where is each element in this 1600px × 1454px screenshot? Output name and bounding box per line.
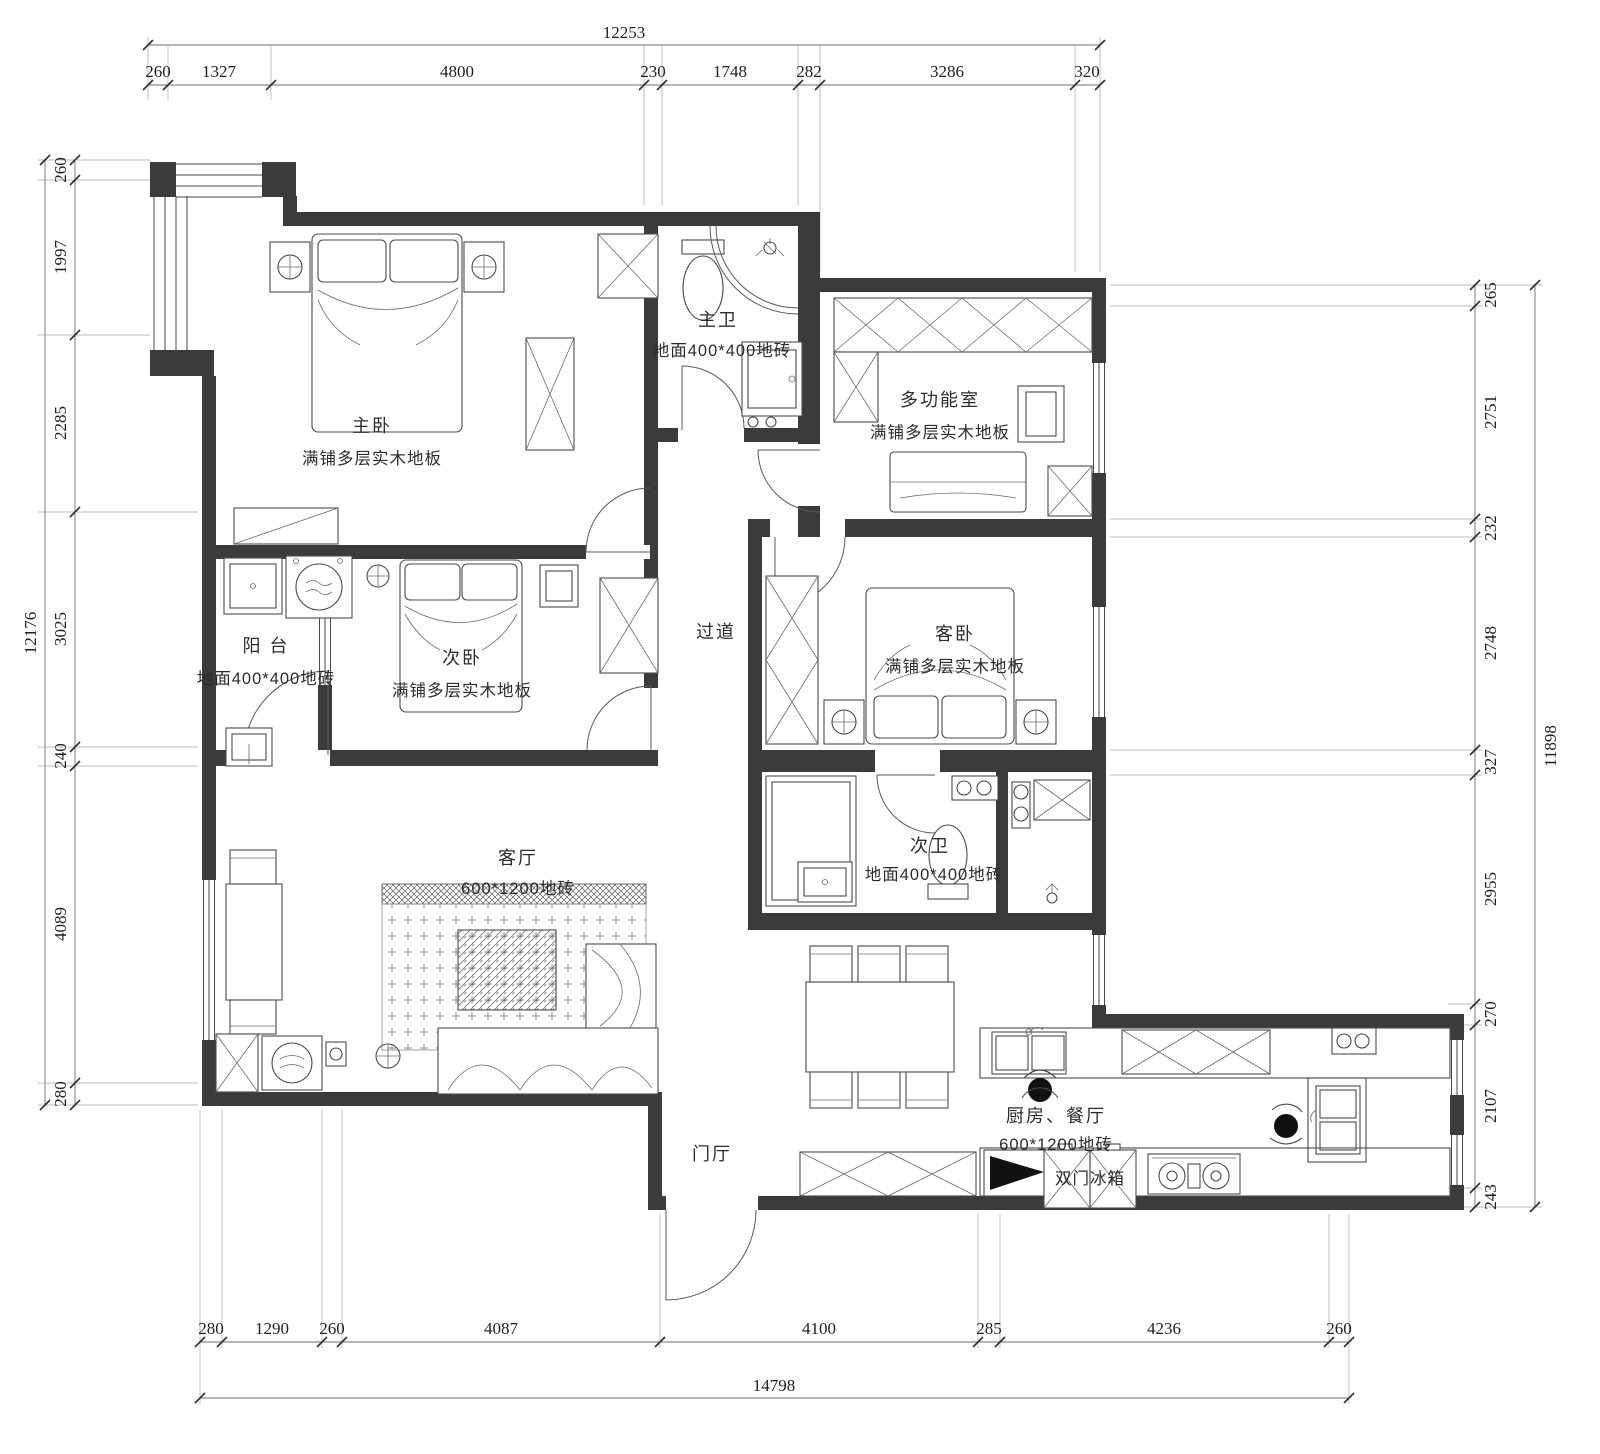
sofa-chaise (586, 944, 656, 1030)
room-label-corridor: 过道 (696, 622, 736, 642)
floor-plan-page: 12253 260 1327 4800 230 1748 282 3286 32… (0, 0, 1600, 1454)
dim-top-seg: 230 (640, 62, 666, 81)
floor-plan-canvas: 12253 260 1327 4800 230 1748 282 3286 32… (0, 0, 1600, 1454)
door-second-bedroom (587, 686, 651, 750)
side-unit (326, 1042, 346, 1066)
chair (230, 850, 276, 884)
dim-left-seg: 3025 (51, 612, 70, 646)
room-label-multi-function: 多功能室 满铺多层实木地板 (870, 390, 1010, 442)
room-floor-spec: 600*1200地砖 (999, 1135, 1113, 1154)
dim-left-seg: 4089 (51, 907, 70, 941)
dim-top-seg: 1327 (202, 62, 237, 81)
dim-top-total: 12253 (603, 23, 646, 42)
door-master-bath (682, 366, 744, 430)
room-name: 次卫 (910, 836, 950, 856)
dim-top-seg: 3286 (930, 62, 964, 81)
balcony-fixtures (224, 556, 352, 766)
person-icon (1022, 1070, 1058, 1102)
room-label-balcony: 阳 台 地面400*400地砖 (197, 636, 335, 688)
dim-left-seg: 2285 (51, 406, 70, 440)
person-icon (1270, 1104, 1302, 1144)
bay-window-top (176, 164, 262, 197)
dim-right-seg: 327 (1481, 749, 1500, 775)
kitchen-sink (992, 1032, 1066, 1074)
dim-right-seg: 2751 (1481, 395, 1500, 429)
laundry-sink (224, 558, 282, 614)
chair (858, 1072, 900, 1108)
kitchen-dining-furniture (800, 946, 1450, 1208)
room-floor-spec: 地面400*400地砖 (653, 341, 791, 360)
living-room-furniture (216, 850, 658, 1094)
master-bedroom-furniture (234, 234, 658, 544)
room-floor-spec: 满铺多层实木地板 (885, 657, 1025, 676)
dim-bottom-seg: 4236 (1147, 1319, 1181, 1338)
dim-left-seg: 1997 (51, 240, 70, 275)
dim-bottom-total: 14798 (753, 1376, 796, 1395)
room-name: 客卧 (935, 624, 975, 644)
room-name: 多功能室 (900, 390, 980, 410)
window-kitchen-right-1 (1450, 1040, 1464, 1095)
room-floor-spec: 满铺多层实木地板 (870, 423, 1010, 442)
room-floor-spec: 满铺多层实木地板 (392, 681, 532, 700)
dim-bottom-seg: 280 (198, 1319, 224, 1338)
dim-bottom-seg: 285 (976, 1319, 1002, 1338)
kitchen-sink-2 (1316, 1086, 1360, 1154)
room-name: 主卫 (698, 310, 738, 330)
dim-right-seg: 2955 (1481, 872, 1500, 906)
room-name: 客厅 (498, 848, 538, 868)
dim-right-total: 11898 (1541, 725, 1560, 767)
desk (1018, 386, 1064, 442)
room-floor-spec: 满铺多层实木地板 (302, 449, 442, 468)
bay-window-left (154, 196, 187, 350)
door-master-bedroom (586, 488, 650, 552)
window-living-left (202, 880, 216, 1040)
upper-cabinet (1122, 1030, 1270, 1074)
dim-top-seg: 282 (796, 62, 822, 81)
fridge-label: 双门冰箱 (1055, 1169, 1125, 1188)
dim-left-total: 12176 (21, 612, 40, 655)
dim-top-seg: 1748 (713, 62, 747, 81)
dim-bottom-seg: 4087 (484, 1319, 519, 1338)
dim-bottom-seg: 4100 (802, 1319, 836, 1338)
toilet-tank (928, 884, 968, 899)
window-kitchen-band-right (1092, 935, 1106, 1005)
dim-bottom-seg: 260 (1326, 1319, 1352, 1338)
dim-left-seg: 240 (51, 743, 70, 769)
window-multifunction-right (1092, 363, 1106, 473)
dim-left-seg: 280 (51, 1081, 70, 1107)
chair (858, 946, 900, 982)
shower-glass (710, 226, 798, 314)
room-floor-spec: 地面400*400地砖 (197, 669, 335, 688)
dining-table-small (226, 884, 282, 1000)
door-second-bath (877, 775, 935, 833)
dim-top-seg: 320 (1074, 62, 1100, 81)
fireplace (262, 1036, 322, 1090)
dim-right-seg: 2107 (1481, 1089, 1500, 1124)
wardrobe (766, 576, 818, 744)
chair (230, 1000, 276, 1034)
dim-left-seg: 260 (51, 157, 70, 183)
dim-bottom-seg: 260 (319, 1319, 345, 1338)
room-name: 次卧 (442, 648, 482, 668)
dim-right-seg: 243 (1481, 1184, 1500, 1210)
dim-right-seg: 265 (1481, 282, 1500, 308)
sofa (438, 1028, 658, 1094)
dimension-chain-left: 12176 260 1997 2285 3025 240 4089 280 (21, 155, 198, 1110)
dim-right-seg: 2748 (1481, 626, 1500, 660)
dining-table (806, 982, 954, 1072)
dim-top-seg: 4800 (440, 62, 474, 81)
chair (906, 946, 948, 982)
room-name: 门厅 (692, 1144, 732, 1164)
chair (810, 946, 852, 982)
room-floor-spec: 600*1200地砖 (461, 879, 575, 898)
floor-drain-icon (1047, 893, 1057, 903)
room-label-living-room: 客厅 600*1200地砖 (461, 848, 575, 898)
window-kitchen-right-2 (1450, 1135, 1464, 1185)
dim-right-seg: 270 (1481, 1001, 1500, 1027)
dim-top-seg: 260 (145, 62, 171, 81)
room-label-master-bath: 主卫 地面400*400地砖 (653, 310, 791, 360)
chair (906, 1072, 948, 1108)
room-name: 过道 (696, 622, 736, 642)
room-name: 厨房、餐厅 (1006, 1106, 1106, 1126)
room-label-entry: 门厅 (692, 1144, 732, 1164)
door-multifunction (758, 450, 820, 512)
dim-bottom-seg: 1290 (255, 1319, 289, 1338)
room-name: 阳 台 (242, 636, 289, 656)
door-entrance (666, 1210, 756, 1300)
coffee-table (458, 930, 556, 1010)
window-guest-right (1092, 607, 1106, 717)
room-name: 主卧 (352, 416, 392, 436)
room-label-kitchen-dining: 厨房、餐厅 600*1200地砖 (999, 1106, 1113, 1154)
shoe-cabinet (800, 1152, 976, 1196)
wardrobe (834, 298, 1092, 352)
chair (810, 1072, 852, 1108)
dim-right-seg: 232 (1481, 515, 1500, 541)
room-floor-spec: 地面400*400地砖 (865, 865, 1003, 884)
